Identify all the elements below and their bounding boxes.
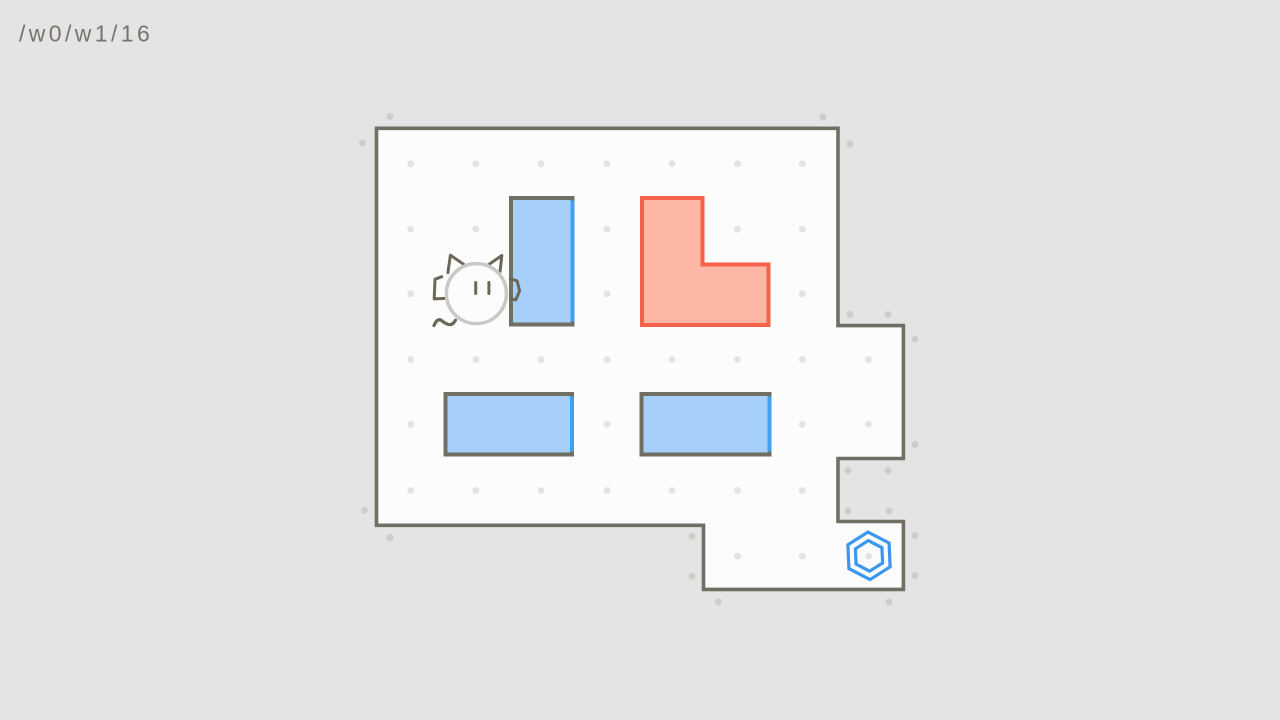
svg-text:/w0/w1/16: /w0/w1/16 — [19, 21, 153, 47]
